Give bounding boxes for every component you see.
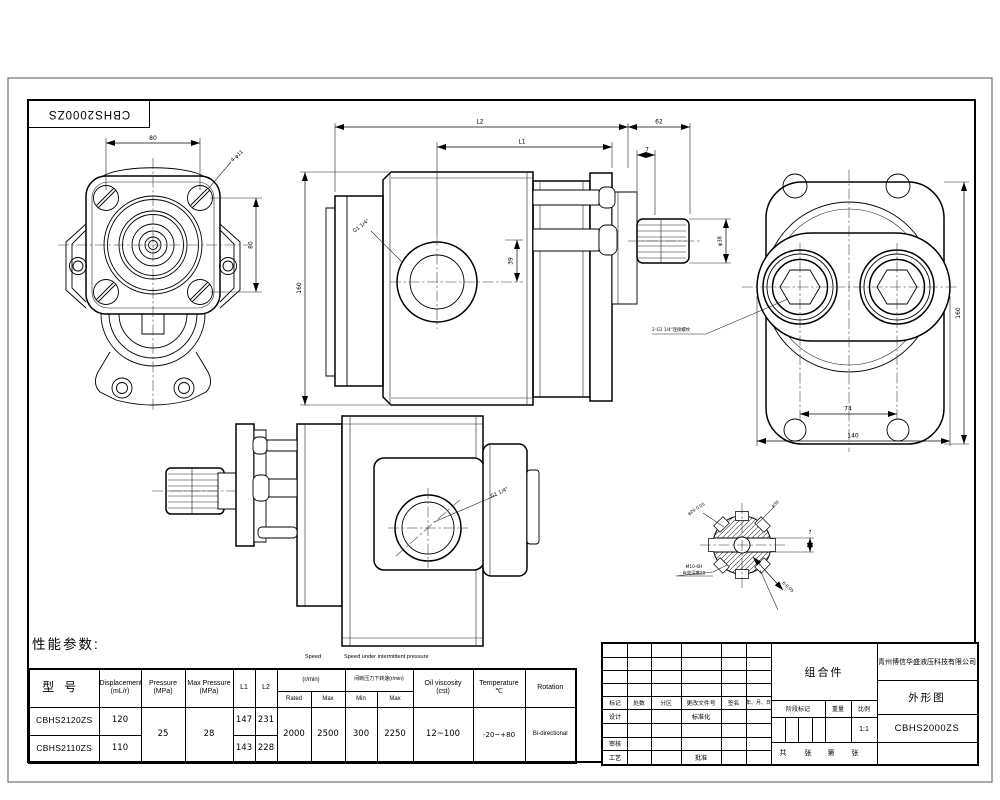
title-block: 标记 处数 分区 更改文件号 签名 年、月、日 设计 标准化 审核 工艺 批准 … — [601, 642, 979, 766]
col-header-displacement: Displacement (mL/r) — [99, 669, 141, 707]
displacement-unit: (mL/r) — [100, 688, 141, 696]
label-number: 第 — [823, 742, 839, 764]
viscosity-label: Oil viscosity — [414, 680, 473, 688]
drawing-model: CBHS2000ZS — [877, 714, 977, 742]
col-header-min: Min — [345, 691, 377, 707]
label-change-doc: 更改文件号 — [681, 696, 721, 709]
label-sheet2: 张 — [847, 742, 863, 764]
cell-max2: 2250 — [377, 707, 413, 763]
pressure-label: Pressure — [142, 680, 185, 688]
col-header-max: Max — [311, 691, 345, 707]
col-header-l2: L2 — [255, 669, 277, 707]
col-header-pressure: Pressure (MPa) — [141, 669, 185, 707]
dim-rear-width: 140 — [847, 433, 859, 440]
drawing-sheet: 80 80 4-φ11 — [0, 0, 1000, 800]
label-detail-outer-dia: φ30 — [770, 499, 780, 509]
temperature-label: Temperature — [474, 680, 525, 688]
label-sign: 签名 — [721, 696, 746, 709]
label-sheet: 张 — [800, 742, 816, 764]
leader-rear-ports: 2-G1 1/4"连接螺纹 — [652, 326, 691, 333]
dim-side-7: 7 — [645, 147, 649, 154]
company-name: 青州博信华盛液压科技有限公司 — [877, 644, 977, 680]
label-detail-thread-depth: 有效深度20 — [683, 570, 706, 577]
cell-rotation: Bi-directional — [525, 707, 576, 763]
performance-table: 型号 Displacement (mL/r) Pressure (MPa) Ma… — [28, 668, 577, 764]
dim-side-height: 160 — [296, 282, 303, 294]
assembly-name: 组合件 — [771, 644, 877, 700]
col-header-l1: L1 — [233, 669, 255, 707]
temperature-unit: ℃ — [474, 688, 525, 696]
label-detail-thread: M10-6H — [686, 564, 703, 570]
dim-detail-slot: 7 — [808, 530, 811, 536]
label-stage-mark: 阶段标记 — [771, 700, 825, 717]
col-header-max2: Max — [377, 691, 413, 707]
performance-section-title: 性能参数: — [32, 633, 100, 653]
dim-side-l2: L2 — [476, 119, 483, 126]
label-design: 设计 — [603, 709, 627, 723]
max-pressure-label: Max Pressure — [186, 680, 233, 688]
label-approve: 批准 — [681, 750, 721, 764]
label-detail-root-dia: φ26-0.05 — [687, 501, 707, 517]
table-row: CBHS2120ZS 120 25 28 147 231 2000 2500 3… — [29, 707, 576, 735]
cell-l1-1: 147 — [233, 707, 255, 735]
leader-front-holes: 4-φ11 — [230, 149, 245, 163]
col-header-temperature: Temperature ℃ — [473, 669, 525, 707]
dim-rear-height: 160 — [955, 307, 962, 319]
col-header-rated: Rated — [277, 691, 311, 707]
cell-max: 2500 — [311, 707, 345, 763]
cell-model-2: CBHS2110ZS — [29, 735, 99, 763]
label-process: 工艺 — [603, 750, 627, 764]
label-weight: 重量 — [825, 700, 851, 717]
cell-min: 300 — [345, 707, 377, 763]
caption-speed-intermittent: Speed under intermittent pressure — [344, 654, 429, 660]
col-header-max-pressure: Max Pressure (MPa) — [185, 669, 233, 707]
corner-model-label: CBHS2000ZS — [28, 100, 150, 128]
leader-side-port: G1 1/4" — [352, 218, 371, 234]
dim-side-39: 39 — [508, 257, 515, 265]
cell-max-pressure: 28 — [185, 707, 233, 763]
cell-l2-2: 228 — [255, 735, 277, 763]
caption-speed: Speed — [293, 654, 333, 660]
cell-displacement-1: 120 — [99, 707, 141, 735]
col-group-speed: (r/min) — [277, 669, 345, 691]
label-count: 处数 — [627, 696, 651, 709]
dim-side-shaft: φ38 — [718, 236, 724, 246]
max-pressure-unit: (MPa) — [186, 688, 233, 696]
label-scale: 比例 — [851, 700, 877, 717]
dim-rear-ports: 74 — [844, 406, 852, 413]
cell-l2-1: 231 — [255, 707, 277, 735]
side-view: L2 62 L1 7 160 39 φ38 G1 1/4" — [296, 119, 731, 406]
pressure-unit: (MPa) — [142, 688, 185, 696]
cell-temperature: -20~+80 — [473, 707, 525, 763]
front-view: 80 80 4-φ11 — [58, 135, 262, 410]
viscosity-unit: (cst) — [414, 688, 473, 696]
dim-side-l1: L1 — [518, 139, 525, 146]
cell-displacement-2: 110 — [99, 735, 141, 763]
col-header-rotation: Rotation — [525, 669, 576, 707]
cell-model-1: CBHS2120ZS — [29, 707, 99, 735]
lateral-view: G1 1/4" — [152, 416, 539, 646]
front-view-dimensions: 80 80 4-φ11 — [106, 135, 262, 292]
label-total: 共 — [775, 742, 791, 764]
col-group-intermittent: 间断压力下转速(r/min) — [345, 669, 413, 691]
shaft-section-detail: 7 φ26-0.05 φ30 M10-6H 有效深度20 6-0.05 — [676, 499, 814, 610]
cell-viscosity: 12~100 — [413, 707, 473, 763]
dim-side-62: 62 — [655, 119, 663, 126]
cell-rated: 2000 — [277, 707, 311, 763]
col-header-viscosity: Oil viscosity (cst) — [413, 669, 473, 707]
dim-front-height: 80 — [248, 241, 255, 249]
cell-pressure: 25 — [141, 707, 185, 763]
scale-value: 1:1 — [851, 717, 877, 742]
col-header-model: 型号 — [29, 669, 99, 707]
label-check: 审核 — [603, 737, 627, 750]
label-standardize: 标准化 — [681, 709, 721, 723]
drawing-name: 外形图 — [877, 680, 977, 714]
rear-view: 74 140 160 2-G1 1/4"连接螺纹 — [652, 170, 969, 452]
label-detail-key-width: 6-0.05 — [781, 580, 796, 594]
corner-model-text: CBHS2000ZS — [48, 108, 130, 120]
label-mark: 标记 — [603, 696, 627, 709]
label-zone: 分区 — [651, 696, 681, 709]
cell-l1-2: 143 — [233, 735, 255, 763]
dim-front-width: 80 — [149, 135, 157, 142]
label-date: 年、月、日 — [746, 696, 771, 709]
displacement-label: Displacement — [100, 680, 141, 688]
